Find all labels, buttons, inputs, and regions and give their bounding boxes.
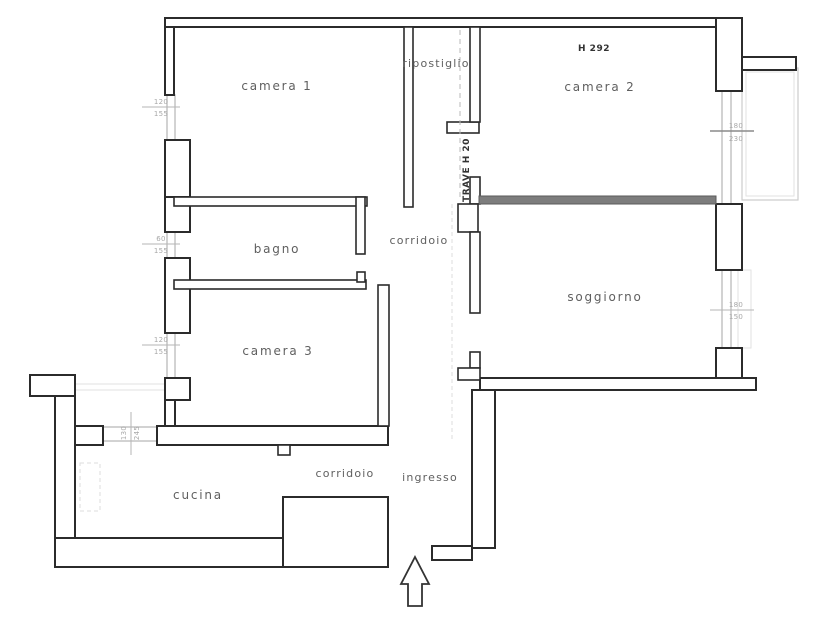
dim-camera3-h: 155 <box>154 348 168 356</box>
floorplan-sheet: 120 155 60 155 120 155 130 245 180 230 1… <box>0 0 830 644</box>
wall-cucina-bottom <box>55 538 285 567</box>
balcony-soggiorno <box>738 270 751 348</box>
window-cucina <box>103 427 157 441</box>
wall-left-pilaster1 <box>165 140 190 197</box>
wall-left-pilaster2 <box>165 258 190 333</box>
label-corridoio-top: corridoio <box>390 234 449 247</box>
dim-camera2-h: 230 <box>729 135 743 143</box>
window-camera2 <box>722 91 731 204</box>
dim-soggiorno-w: 180 <box>729 301 743 309</box>
label-cucina: cucina <box>173 488 223 502</box>
dim-camera2-w: 180 <box>729 122 743 130</box>
notes: H 292 TRAVE H 20 <box>462 44 610 202</box>
wall-party-stub <box>30 375 75 396</box>
label-corridoio-bottom: corridoio <box>316 467 375 480</box>
wall-ripostiglio-bottom <box>447 122 479 133</box>
wall-cucina-top-left <box>75 426 103 445</box>
wall-right-upper <box>716 18 742 91</box>
window-camera3 <box>167 333 175 378</box>
wall-entry-step-block <box>283 497 388 567</box>
wall-bagno-bottom <box>174 280 366 289</box>
dim-camera3-w: 120 <box>154 336 168 344</box>
wall-soggiorno-left-b <box>470 232 480 313</box>
cucina-dashed-fixture <box>80 463 100 511</box>
wall-soggiorno-bottom <box>480 378 756 390</box>
label-camera1: camera 1 <box>241 79 312 93</box>
wall-camera2-soggiorno-divider <box>479 196 716 204</box>
balcony-camera2-inner <box>746 72 794 196</box>
wall-right-mid <box>716 204 742 270</box>
dim-cucina-w: 130 <box>120 426 128 440</box>
floorplan-canvas: 120 155 60 155 120 155 130 245 180 230 1… <box>0 0 830 644</box>
balcony-camera2 <box>742 68 798 200</box>
wall-top <box>165 18 742 27</box>
wall-ingresso-right <box>472 390 495 548</box>
dim-camera1-w: 120 <box>154 98 168 106</box>
wall-right-stub <box>742 57 796 70</box>
wall-bagno-right <box>356 197 365 254</box>
wall-right-lower <box>716 348 742 382</box>
dim-cucina-h: 245 <box>133 426 141 440</box>
window-bagno <box>167 232 175 258</box>
wall-corridor-top <box>157 426 388 445</box>
window-soggiorno <box>722 270 731 348</box>
label-bagno: bagno <box>254 242 301 256</box>
balconies <box>738 68 798 348</box>
wall-soggiorno-left-a <box>458 204 478 232</box>
dimensions: 120 155 60 155 120 155 130 245 180 230 1… <box>120 98 754 455</box>
dim-bagno-w: 60 <box>156 235 166 243</box>
wall-bagno-stub <box>357 272 365 282</box>
note-ceiling-height: H 292 <box>578 44 610 54</box>
wall-camera1-right <box>404 27 413 207</box>
wall-left-c <box>165 378 190 400</box>
note-beam: TRAVE H 20 <box>462 138 472 202</box>
wall-entrance-right <box>432 546 472 560</box>
door-jamb-cucina <box>278 445 290 455</box>
dim-camera1-h: 155 <box>154 110 168 118</box>
wall-left-a <box>165 27 174 95</box>
window-camera1 <box>167 95 175 140</box>
wall-soggiorno-left-c <box>470 352 480 368</box>
wall-camera2-left-upper <box>470 27 480 122</box>
label-camera3: camera 3 <box>242 344 313 358</box>
wall-soggiorno-left-step <box>458 368 480 380</box>
wall-camera1-bottom <box>174 197 367 206</box>
entrance-arrow-icon <box>401 557 429 606</box>
label-camera2: camera 2 <box>564 80 635 94</box>
dim-bagno-h: 155 <box>154 247 168 255</box>
label-ripostiglio: ripostiglio <box>402 57 469 70</box>
label-ingresso: ingresso <box>402 471 458 484</box>
dim-soggiorno-h: 150 <box>729 313 743 321</box>
label-soggiorno: soggiorno <box>567 290 642 304</box>
wall-camera3-right <box>378 285 389 426</box>
